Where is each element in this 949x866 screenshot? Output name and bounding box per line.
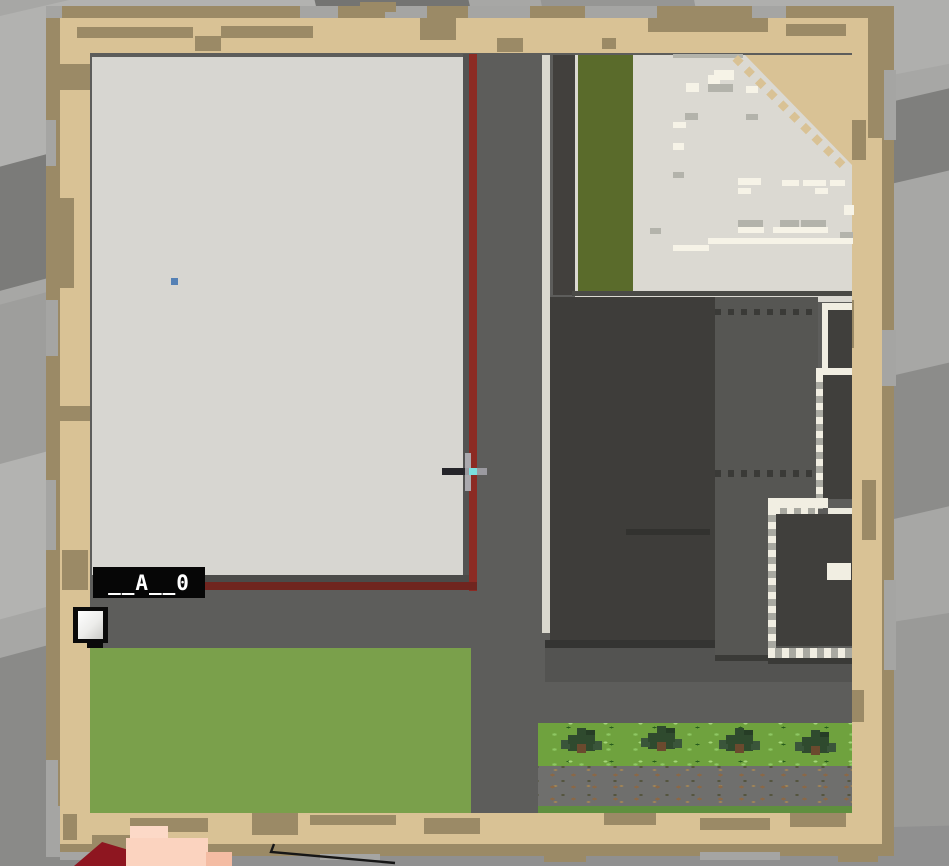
tree-icon [802, 737, 811, 746]
frame-accent [497, 38, 523, 52]
frame-accent [868, 18, 882, 138]
frame-accent [60, 198, 74, 288]
map-label-text: __A__0 [93, 570, 205, 596]
frame-accent [424, 818, 480, 834]
frame-notch [46, 480, 56, 550]
map-dark-interior [828, 310, 852, 368]
map-dark-line [768, 658, 852, 664]
map-dark-line [572, 291, 852, 296]
tree-icon [568, 735, 577, 744]
map-dashed-outline [816, 375, 823, 509]
map-dash [773, 227, 828, 233]
frame-accent [700, 818, 770, 830]
frame-accent [602, 38, 616, 49]
white-map-marker-face [78, 611, 103, 639]
frame-bump [544, 848, 586, 862]
frame-notch [46, 120, 56, 166]
crosshair-center [469, 468, 477, 475]
tree-icon [726, 735, 735, 744]
frame-notch [46, 806, 60, 857]
map-red-outline-vertical [469, 54, 477, 591]
blue-dot-marker-icon [171, 278, 178, 285]
map-dash [708, 238, 853, 244]
frame-notch [46, 6, 62, 18]
crosshair-horizontal-left [442, 468, 465, 475]
map-white-outline [827, 563, 851, 580]
map-region-roof-large [92, 57, 465, 575]
frame-accent [60, 64, 90, 90]
map-dash [673, 54, 743, 58]
map-dash [738, 188, 751, 194]
tree-icon [648, 733, 657, 742]
map-region-gravel-path [538, 766, 852, 806]
map-dash [746, 86, 758, 93]
map-dash [673, 245, 709, 251]
frame-accent [420, 18, 456, 40]
map-dash [673, 122, 686, 128]
map-dash [685, 113, 698, 120]
map-region-olive-field [578, 55, 633, 291]
frame-accent [852, 120, 866, 160]
map-region-dark-strip [553, 55, 575, 295]
frame-accent [195, 36, 221, 51]
map-dotted-edge [715, 470, 818, 477]
map-region-building-dark [550, 297, 715, 640]
frame-accent [648, 18, 768, 32]
map-dash [673, 143, 684, 150]
frame-accent [252, 813, 298, 835]
player-hand-skin [206, 852, 232, 866]
frame-accent [221, 26, 313, 38]
map-dash [708, 84, 733, 92]
frame-notch [880, 330, 896, 386]
map-label-box: __A__0 [93, 567, 205, 598]
frame-accent [786, 24, 846, 36]
map-dark-interior [776, 514, 852, 646]
frame-accent [790, 813, 846, 827]
player-hand-skin [126, 838, 208, 866]
frame-accent [62, 550, 88, 590]
map-white-outline [768, 498, 828, 508]
map-dash [746, 114, 758, 120]
map-region-grass [90, 648, 471, 813]
map-dash [782, 180, 799, 186]
map-dash [780, 220, 799, 227]
game-viewport[interactable]: __A__0 [0, 0, 949, 866]
gravel-speckles [538, 766, 852, 806]
frame-accent [77, 27, 193, 38]
frame-accent [310, 815, 396, 825]
map-dash [844, 205, 854, 215]
map-white-outline [816, 368, 852, 375]
frame-accent [862, 480, 876, 540]
frame-notch [884, 70, 896, 140]
frame-accent [60, 406, 90, 421]
map-dash [801, 220, 826, 227]
frame-accent [604, 813, 656, 825]
white-map-marker-base [87, 639, 103, 648]
map-dashed-outline [768, 648, 852, 658]
frame-notch [46, 760, 58, 810]
map-region-grass-line [538, 806, 852, 813]
frame-accent [63, 814, 77, 840]
map-dark-interior [823, 375, 852, 499]
white-map-marker-icon [73, 607, 108, 643]
map-dash [815, 188, 828, 194]
map-dash [686, 83, 699, 92]
map-dash [803, 180, 826, 186]
map-dash [830, 180, 845, 186]
frame-notch [46, 300, 58, 356]
map-building-dark-dash [626, 529, 710, 535]
map-sidewalk-stripe [542, 55, 550, 633]
map-dash [650, 228, 661, 234]
map-dotted-edge [715, 309, 818, 315]
map-region-grass-strip [538, 723, 852, 766]
map-dash [738, 220, 763, 227]
frame-notch [700, 852, 780, 860]
frame-notch [884, 580, 896, 670]
frame-bump [360, 2, 396, 12]
map-dashed-outline [768, 508, 776, 656]
map-dash [714, 70, 734, 80]
map-building-dark-edge [545, 640, 717, 648]
frame-bump [838, 850, 878, 862]
held-item-line [258, 838, 408, 866]
map-dash [738, 227, 764, 233]
map-content: __A__0 [90, 53, 852, 813]
map-dash [673, 172, 684, 178]
map-dash [738, 178, 761, 185]
